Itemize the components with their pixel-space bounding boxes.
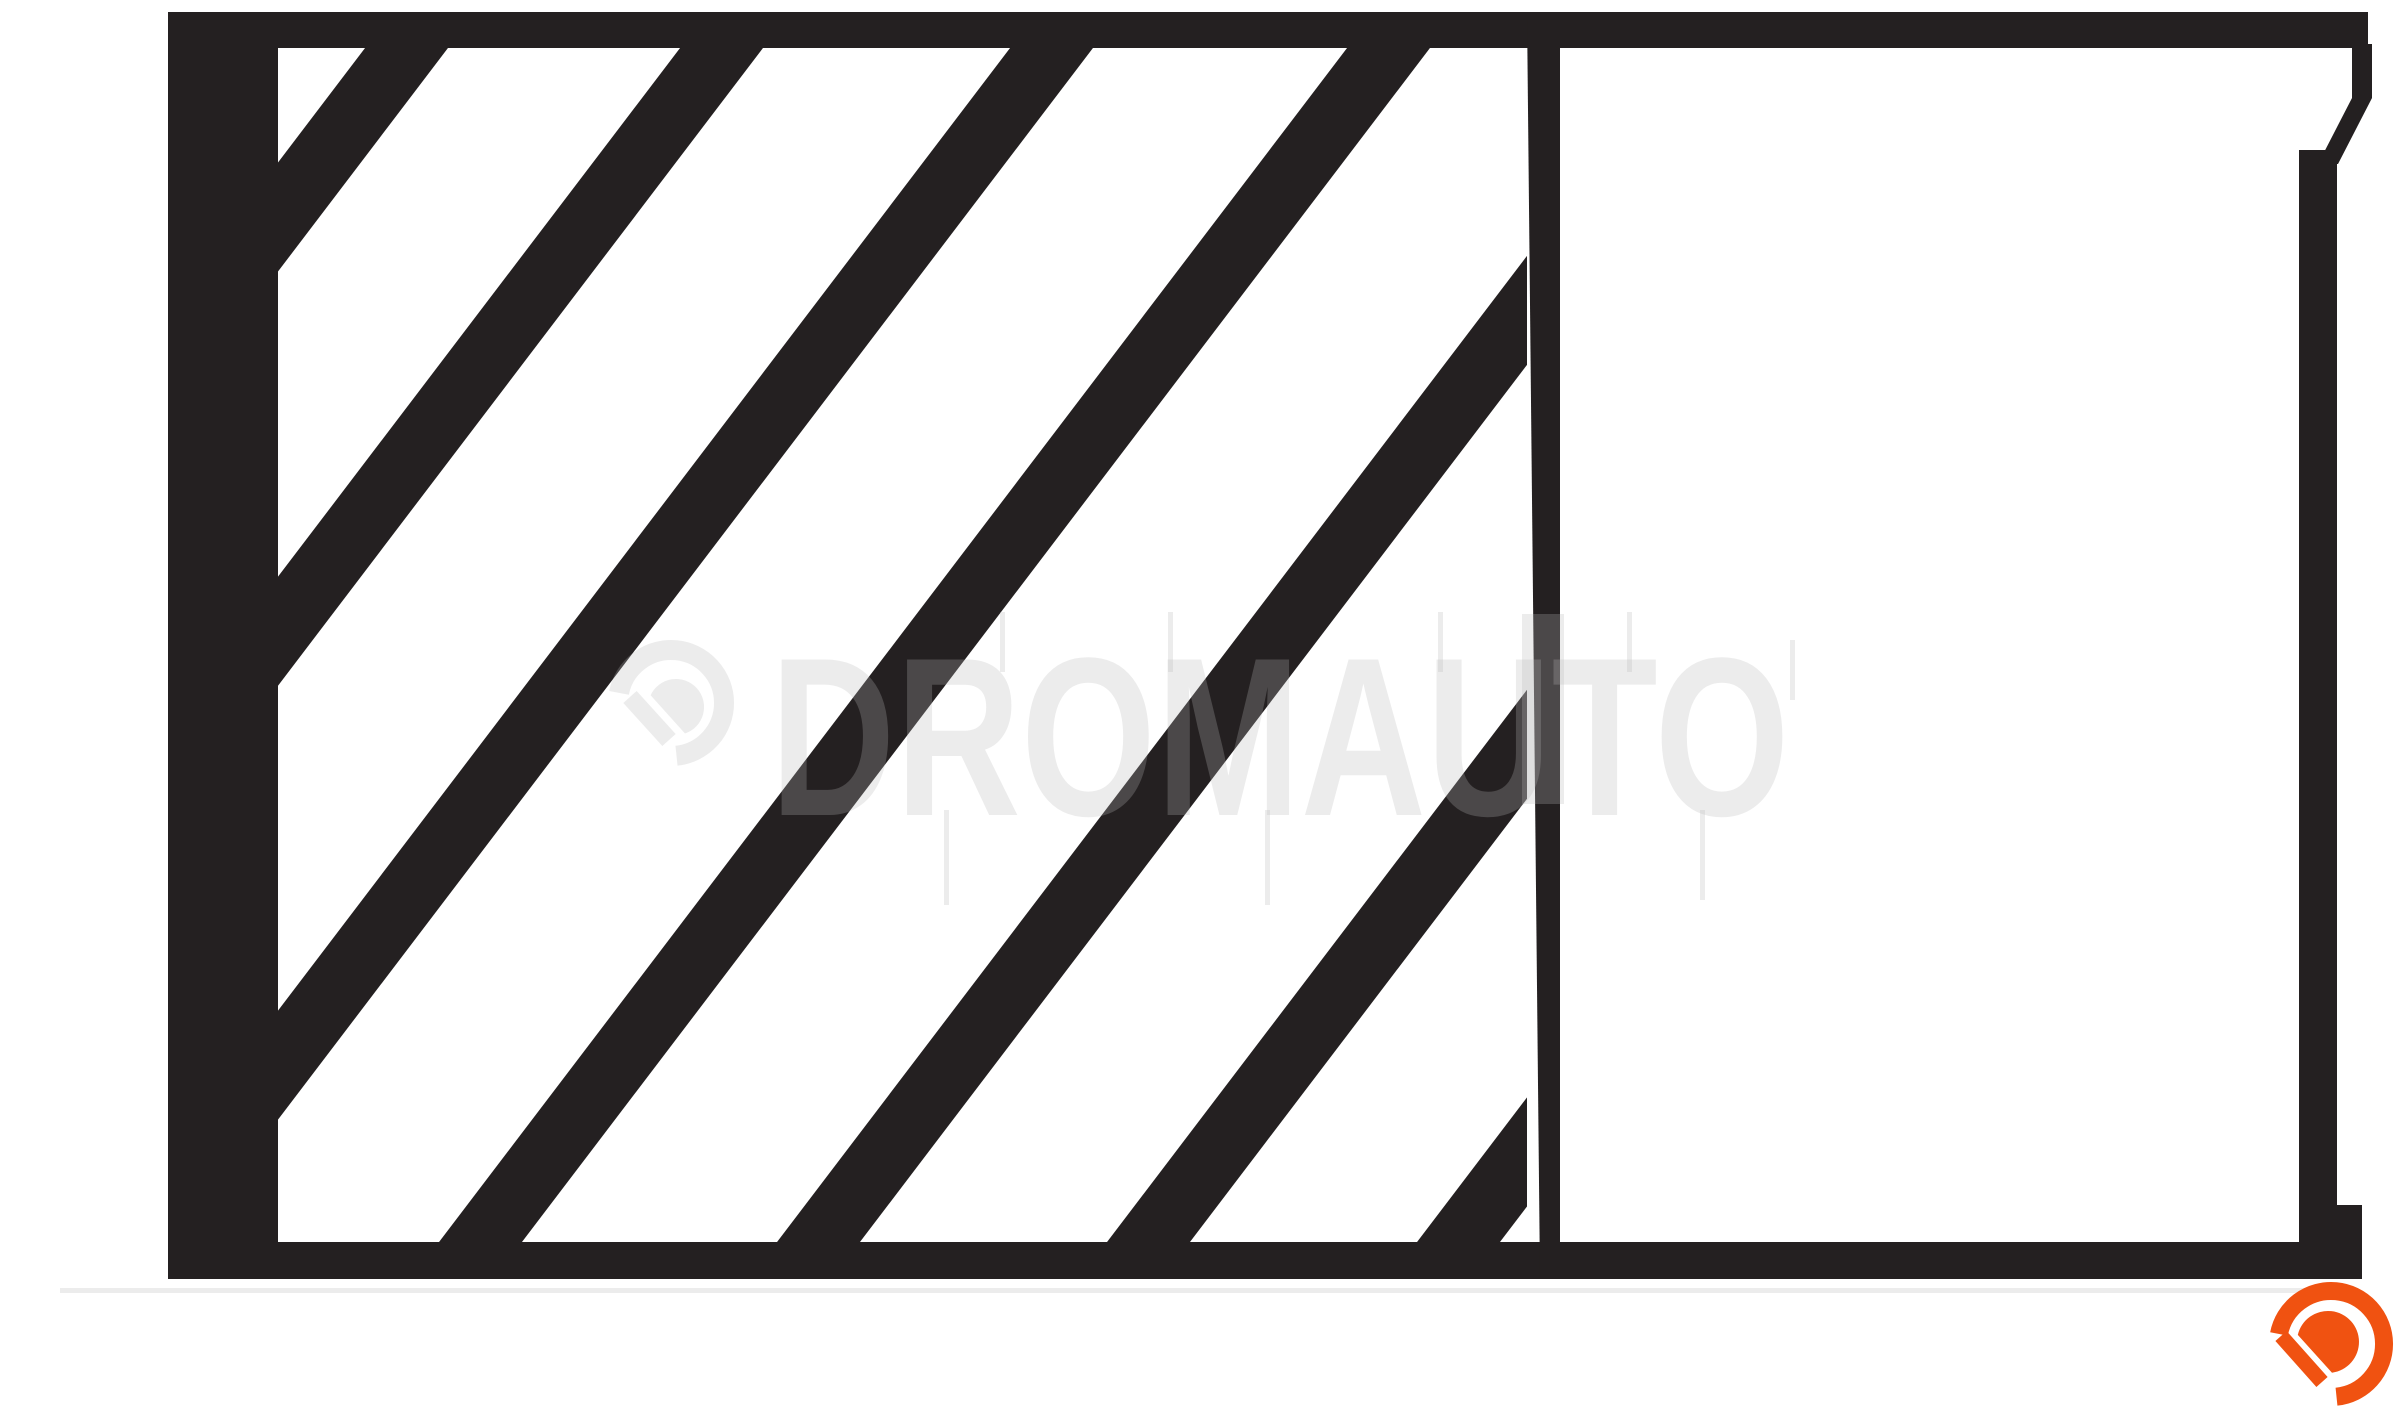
svg-text:DROMAUTO: DROMAUTO bbox=[770, 612, 1790, 864]
